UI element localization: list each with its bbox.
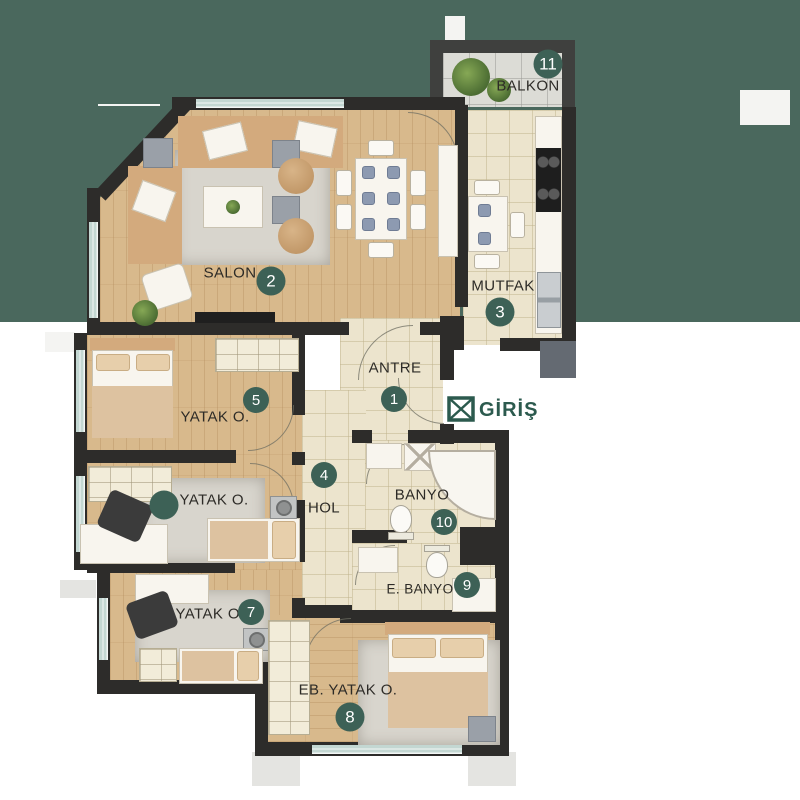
cooktop — [536, 148, 561, 212]
pillar-notch — [45, 332, 75, 352]
hol-wall-seg2 — [292, 452, 305, 465]
antre-wall-right-top — [440, 318, 454, 380]
room-label-salon: SALON — [204, 265, 257, 282]
pillar-notch — [60, 580, 96, 598]
room-label-hol: HOL — [308, 500, 340, 517]
bathroom-vanity — [366, 443, 402, 469]
coffee-table-plant-icon — [226, 200, 240, 214]
room-number-antre: 1 — [381, 386, 407, 412]
kitchen-chair — [474, 254, 500, 269]
bed-pillow — [96, 354, 130, 371]
plate — [387, 166, 400, 179]
pillar-notch — [740, 90, 790, 125]
ac-unit — [270, 496, 297, 519]
bed-pillow — [237, 651, 259, 681]
room-number-eb-yatak: 8 — [336, 703, 365, 732]
kitchen-wall-right — [562, 107, 576, 350]
floor-plan-canvas: ANTRE 1 SALON 2 MUTFAK 3 4 HOL YATAK O. … — [0, 0, 800, 800]
room-number-yatak5: 5 — [243, 387, 269, 413]
room-number-hol: 4 — [311, 462, 337, 488]
utility-block — [540, 341, 576, 378]
plate — [362, 192, 375, 205]
room-label-ebanyo: E. BANYO — [387, 582, 454, 597]
bed-blanket — [210, 521, 268, 559]
pillar-notch — [468, 752, 516, 786]
entrance-label: GİRİŞ — [479, 399, 538, 422]
dining-chair — [410, 170, 426, 196]
entrance-x-icon — [447, 396, 475, 422]
kitchen-chair — [510, 212, 525, 238]
tv-console — [195, 312, 275, 323]
dining-chair — [336, 170, 352, 196]
balcony-plant-icon — [452, 58, 490, 96]
toilet-tank — [424, 545, 450, 552]
toilet — [426, 552, 448, 578]
dining-chair — [368, 242, 394, 258]
pouf — [278, 218, 314, 254]
wardrobe — [268, 620, 310, 735]
dining-chair — [368, 140, 394, 156]
room-label-yatak5: YATAK O. — [180, 409, 249, 426]
balcony-wall-right — [562, 40, 575, 112]
room-number-banyo: 10 — [431, 509, 457, 535]
bedroom8-window — [312, 745, 462, 754]
toilet-tank — [388, 532, 414, 540]
room-number-mutfak: 3 — [486, 298, 515, 327]
pouf — [278, 158, 314, 194]
room-label-yatak7: YATAK O. — [175, 606, 244, 623]
plate — [387, 192, 400, 205]
side-table-lamp — [143, 138, 173, 168]
room-number-yatak7: 7 — [238, 599, 264, 625]
bed-pillow — [136, 354, 170, 371]
room-label-mutfak: MUTFAK — [471, 278, 534, 295]
bed-pillow — [440, 638, 484, 658]
room-number-salon: 2 — [257, 267, 286, 296]
room-number-yatak6 — [150, 491, 179, 520]
room-label-balkon: BALKON — [496, 78, 559, 95]
dresser — [139, 648, 177, 682]
bedroom5-window — [76, 350, 85, 432]
bed-pillow — [272, 521, 296, 559]
toilet — [390, 505, 412, 533]
plate — [478, 204, 491, 217]
room-number-ebanyo: 9 — [454, 572, 480, 598]
bedroom7-window — [99, 598, 108, 660]
kitchen-sink — [537, 272, 561, 328]
room-label-yatak6: YATAK O. — [179, 492, 248, 509]
salon-plant-icon — [132, 300, 158, 326]
dining-chair — [336, 204, 352, 230]
room-number-balkon: 11 — [534, 50, 563, 79]
pillar-notch — [252, 752, 300, 786]
bedroom8-wall-top — [302, 605, 352, 618]
room-label-antre: ANTRE — [369, 360, 422, 377]
bed-pillow — [392, 638, 436, 658]
room-label-eb-yatak: EB. YATAK O. — [299, 682, 398, 699]
plate — [387, 218, 400, 231]
banyo-wall-top — [408, 430, 497, 443]
kitchen-chair — [474, 180, 500, 195]
bathroom-vanity — [358, 547, 398, 573]
bedroom5-6-wall — [74, 450, 236, 463]
plate — [362, 166, 375, 179]
room-label-banyo: BANYO — [395, 487, 450, 504]
bed-blanket — [92, 386, 173, 438]
salon-window-top — [196, 99, 344, 108]
salon-window-left — [89, 222, 98, 318]
bed-blanket — [182, 651, 234, 681]
plate — [478, 232, 491, 245]
banyo-wall-top-left — [352, 430, 372, 443]
nightstand-lamp — [468, 716, 496, 742]
sideboard — [438, 145, 458, 257]
salon-wall-bottom — [87, 322, 349, 335]
plate — [362, 218, 375, 231]
dining-chair — [410, 204, 426, 230]
wardrobe — [215, 338, 299, 372]
